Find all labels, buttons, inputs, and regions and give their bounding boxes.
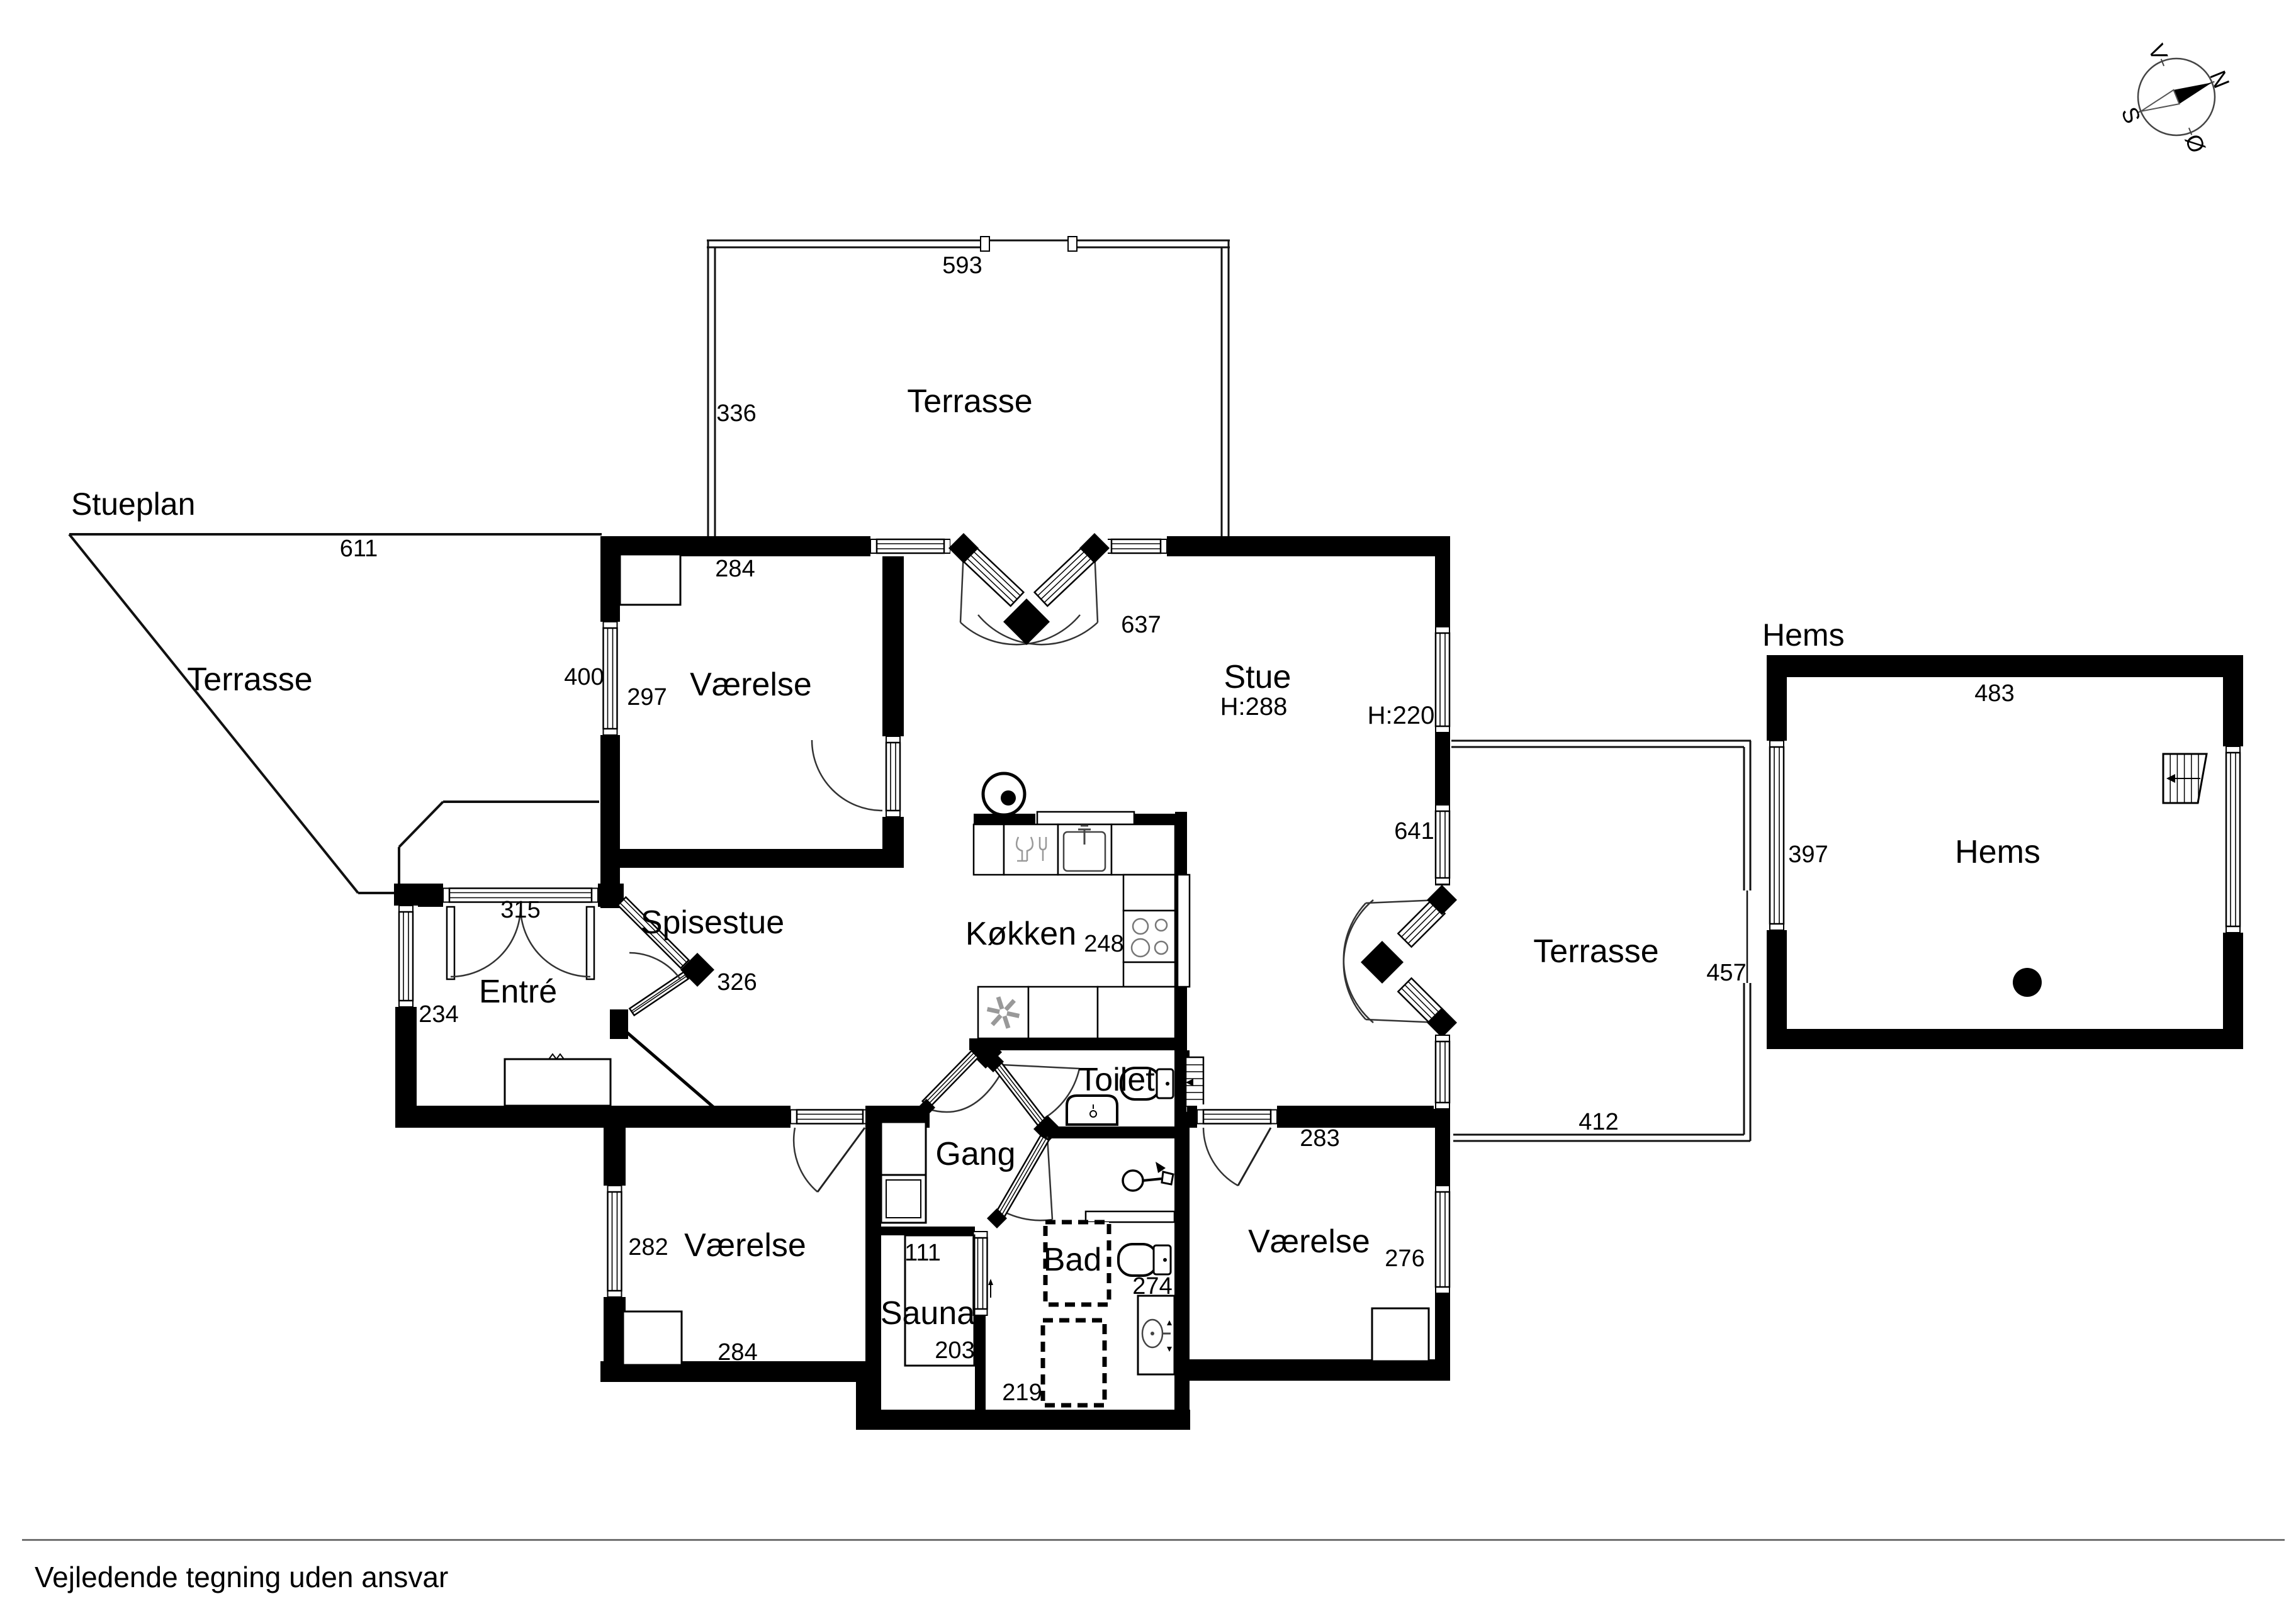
svg-text:Hems: Hems bbox=[1762, 617, 1845, 653]
svg-text:297: 297 bbox=[627, 684, 667, 710]
svg-text:Vejledende tegning uden ansvar: Vejledende tegning uden ansvar bbox=[35, 1561, 448, 1593]
svg-text:457: 457 bbox=[1706, 960, 1746, 986]
svg-text:336: 336 bbox=[716, 400, 756, 427]
svg-text:Køkken: Køkken bbox=[965, 916, 1076, 952]
svg-text:276: 276 bbox=[1385, 1245, 1424, 1272]
svg-text:Terrasse: Terrasse bbox=[1533, 933, 1658, 970]
svg-text:Stue: Stue bbox=[1224, 659, 1291, 695]
svg-text:Værelse: Værelse bbox=[1248, 1223, 1370, 1260]
svg-text:Entré: Entré bbox=[479, 974, 557, 1010]
svg-text:234: 234 bbox=[419, 1001, 458, 1028]
svg-text:641: 641 bbox=[1394, 818, 1434, 845]
svg-text:283: 283 bbox=[1300, 1125, 1339, 1152]
svg-text:203: 203 bbox=[935, 1337, 974, 1364]
svg-text:397: 397 bbox=[1788, 841, 1828, 868]
svg-text:111: 111 bbox=[904, 1240, 941, 1266]
svg-text:Sauna: Sauna bbox=[881, 1295, 975, 1332]
svg-text:483: 483 bbox=[1974, 680, 2014, 707]
svg-text:248: 248 bbox=[1084, 931, 1123, 957]
svg-text:Terrasse: Terrasse bbox=[187, 661, 312, 698]
svg-text:Stueplan: Stueplan bbox=[71, 486, 195, 522]
svg-text:Gang: Gang bbox=[935, 1136, 1015, 1172]
svg-text:Værelse: Værelse bbox=[684, 1227, 806, 1264]
svg-text:274: 274 bbox=[1132, 1273, 1172, 1300]
svg-text:Værelse: Værelse bbox=[690, 666, 812, 703]
svg-text:400: 400 bbox=[564, 664, 604, 690]
svg-text:326: 326 bbox=[717, 969, 757, 996]
svg-text:284: 284 bbox=[717, 1339, 757, 1366]
svg-text:Bad: Bad bbox=[1044, 1242, 1102, 1278]
svg-text:Hems: Hems bbox=[1955, 834, 2040, 870]
svg-text:Terrasse: Terrasse bbox=[907, 383, 1032, 420]
svg-text:282: 282 bbox=[628, 1234, 668, 1261]
svg-text:Spisestue: Spisestue bbox=[641, 904, 784, 941]
svg-text:611: 611 bbox=[340, 536, 378, 562]
svg-text:315: 315 bbox=[500, 897, 540, 923]
svg-text:637: 637 bbox=[1121, 612, 1161, 638]
svg-text:H:220: H:220 bbox=[1368, 702, 1435, 729]
svg-text:Toilet: Toilet bbox=[1078, 1062, 1155, 1098]
svg-text:H:288: H:288 bbox=[1220, 693, 1288, 721]
svg-text:593: 593 bbox=[942, 252, 982, 279]
svg-text:284: 284 bbox=[715, 556, 755, 582]
svg-text:412: 412 bbox=[1578, 1109, 1618, 1135]
svg-text:219: 219 bbox=[1002, 1379, 1042, 1406]
